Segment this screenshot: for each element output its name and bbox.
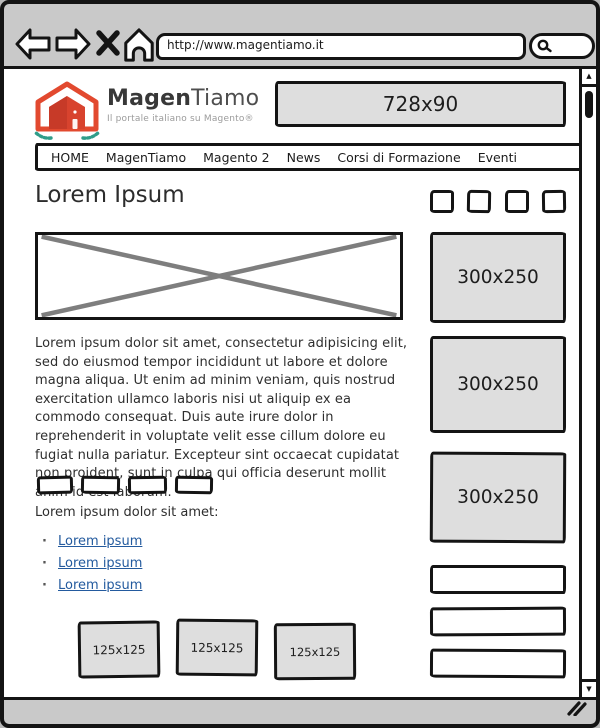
hero-image-placeholder	[35, 232, 403, 320]
search-icon	[536, 38, 554, 54]
ad-300x250-2[interactable]: 300x250	[430, 336, 566, 433]
vertical-scrollbar[interactable]: ▲ ▼	[579, 69, 596, 697]
bullet-icon: ·	[42, 534, 58, 549]
ad-label: 125x125	[290, 644, 341, 658]
site-logo[interactable]: MagenTiamo Il portale italiano su Magent…	[34, 81, 259, 145]
scroll-up-icon: ▲	[586, 73, 591, 80]
brand-tagline: Il portale italiano su Magento®	[107, 114, 259, 124]
thumbnail-row	[37, 476, 213, 494]
nav-item-home[interactable]: HOME	[51, 150, 89, 165]
image-placeholder-x-icon	[38, 235, 400, 317]
nav-item-eventi[interactable]: Eventi	[478, 150, 517, 165]
page-title: Lorem Ipsum	[35, 182, 185, 208]
main-navigation: HOME MagenTiamo Magento 2 News Corsi di …	[35, 143, 585, 171]
ad-banner-728x90[interactable]: 728x90	[275, 81, 566, 127]
thumbnail-placeholder[interactable]	[128, 476, 167, 495]
ad-125x125-1[interactable]: 125x125	[78, 620, 161, 678]
list-intro-text: Lorem ipsum dolor sit amet:	[35, 505, 218, 520]
list-item: ·Lorem ipsum	[42, 530, 142, 552]
bullet-icon: ·	[42, 578, 58, 593]
scroll-up-button[interactable]: ▲	[582, 69, 596, 87]
ad-label: 125x125	[92, 642, 145, 657]
browser-toolbar: http://www.magentiamo.it	[4, 4, 596, 66]
thumbnail-placeholder[interactable]	[175, 476, 213, 495]
nav-item-corsi[interactable]: Corsi di Formazione	[337, 150, 460, 165]
thumbnail-placeholder[interactable]	[81, 476, 120, 495]
scrollbar-thumb[interactable]	[585, 91, 593, 118]
nav-item-magento2[interactable]: Magento 2	[203, 150, 269, 165]
thumbnail-placeholder[interactable]	[37, 476, 73, 495]
brand-light: Tiamo	[191, 86, 259, 111]
sidebar-icon-row	[430, 190, 566, 213]
sidebar-bar-placeholder-3[interactable]	[430, 649, 566, 679]
link-list: ·Lorem ipsum ·Lorem ipsum ·Lorem ipsum	[42, 530, 142, 596]
square-placeholder[interactable]	[542, 190, 566, 213]
ad-label: 125x125	[190, 640, 243, 655]
brand-name: MagenTiamo	[107, 87, 259, 111]
link-lorem-3[interactable]: Lorem ipsum	[58, 578, 142, 593]
link-lorem-2[interactable]: Lorem ipsum	[58, 556, 142, 571]
ad-300x250-1[interactable]: 300x250	[430, 232, 566, 323]
sidebar-bar-placeholder-1[interactable]	[430, 565, 566, 594]
logo-text: MagenTiamo Il portale italiano su Magent…	[107, 87, 259, 124]
square-placeholder[interactable]	[430, 190, 454, 213]
square-placeholder[interactable]	[467, 190, 491, 213]
ad-label: 300x250	[457, 487, 539, 508]
list-item: ·Lorem ipsum	[42, 552, 142, 574]
ad-label: 300x250	[457, 267, 539, 288]
bullet-icon: ·	[42, 556, 58, 571]
resize-grip-icon[interactable]	[567, 700, 587, 720]
stop-icon[interactable]	[96, 30, 120, 60]
list-item: ·Lorem ipsum	[42, 574, 142, 596]
forward-icon[interactable]	[55, 28, 91, 64]
ad-125x125-2[interactable]: 125x125	[176, 619, 259, 677]
link-lorem-1[interactable]: Lorem ipsum	[58, 534, 142, 549]
home-icon[interactable]	[122, 27, 156, 67]
status-bar	[4, 700, 596, 724]
web-page: MagenTiamo Il portale italiano su Magent…	[4, 69, 579, 697]
browser-window: http://www.magentiamo.it MagenTiam	[0, 0, 600, 728]
nav-item-magentiamo[interactable]: MagenTiamo	[106, 150, 186, 165]
ad-125x125-3[interactable]: 125x125	[274, 623, 356, 681]
page-viewport: MagenTiamo Il portale italiano su Magent…	[4, 66, 596, 700]
scroll-down-icon: ▼	[586, 686, 591, 693]
nav-item-news[interactable]: News	[287, 150, 321, 165]
scroll-down-button[interactable]: ▼	[582, 679, 596, 697]
ad-banner-label: 728x90	[383, 92, 458, 116]
sidebar-bar-placeholder-2[interactable]	[430, 607, 566, 637]
search-button[interactable]	[529, 33, 595, 59]
url-text: http://www.magentiamo.it	[167, 38, 324, 52]
ad-300x250-3[interactable]: 300x250	[430, 452, 566, 544]
back-icon[interactable]	[15, 28, 51, 64]
ad-label: 300x250	[457, 374, 539, 395]
url-input[interactable]: http://www.magentiamo.it	[156, 33, 526, 60]
square-placeholder[interactable]	[505, 190, 529, 213]
magentiamo-logo-icon	[34, 81, 100, 145]
brand-bold: Magen	[107, 86, 191, 111]
